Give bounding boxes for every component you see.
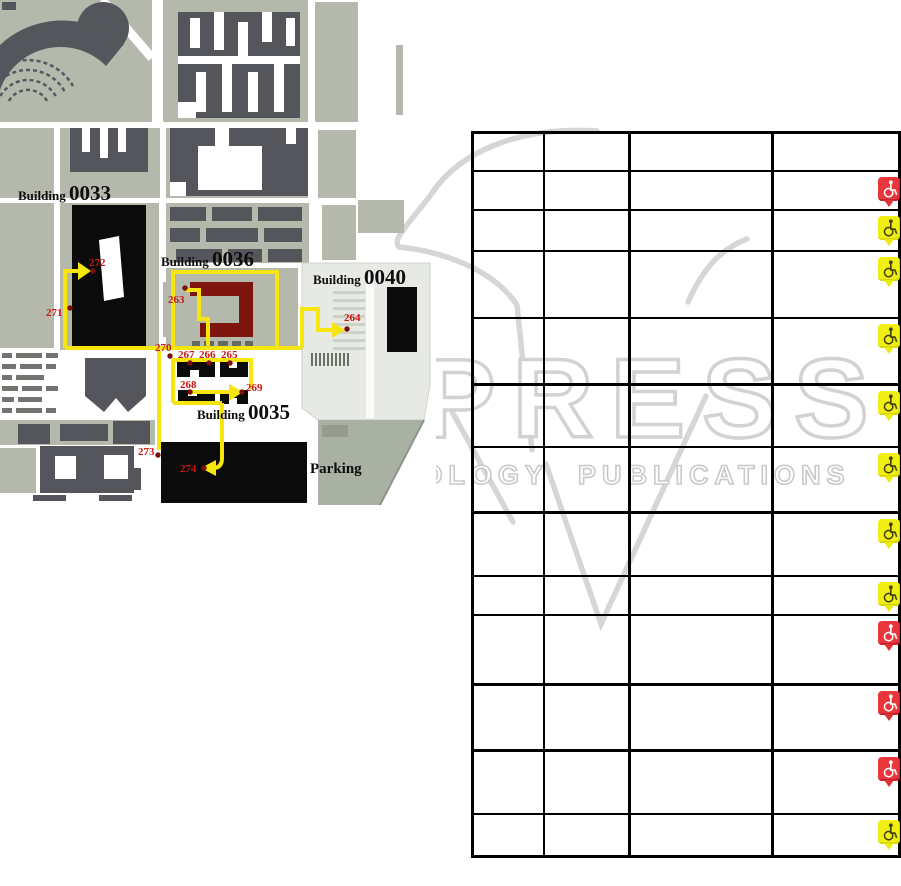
table-row — [473, 615, 900, 685]
waypoint-dot-264 — [344, 326, 349, 331]
table-cell — [630, 814, 773, 857]
waypoint-label-271: 271 — [46, 307, 63, 319]
table-row — [473, 751, 900, 814]
table-cell — [630, 685, 773, 751]
bottom-strip-buildings — [18, 421, 150, 444]
waypoint-label-270: 270 — [155, 342, 172, 354]
table-cell — [473, 318, 544, 385]
header-cell-1 — [473, 133, 544, 171]
wheelchair-icon — [879, 693, 899, 713]
table-cell — [544, 576, 630, 615]
table-row — [473, 318, 900, 385]
table-cell — [544, 385, 630, 447]
table-cell — [630, 513, 773, 576]
table-cell — [544, 685, 630, 751]
table-row — [473, 251, 900, 318]
wheelchair-marker-icon — [878, 519, 900, 543]
wheelchair-marker-icon — [878, 453, 900, 477]
accessibility-table — [471, 131, 901, 858]
paper-figure-page: SCITEPRESS SCIENCE AND TECHNOLOGY PUBLIC… — [0, 0, 901, 886]
table-cell — [630, 210, 773, 251]
waypoint-label-269: 269 — [246, 382, 263, 394]
table-cell — [630, 447, 773, 513]
wheelchair-icon — [879, 179, 899, 199]
waypoint-dot-274 — [201, 465, 206, 470]
table-cell — [473, 814, 544, 857]
parking-label: Parking — [310, 461, 362, 477]
header-cell-4 — [773, 133, 900, 171]
table-cell — [473, 251, 544, 318]
header-cell-2 — [544, 133, 630, 171]
waypoint-dot-263 — [182, 285, 187, 290]
wheelchair-marker-icon — [878, 691, 900, 715]
table-cell — [630, 751, 773, 814]
table-cell — [630, 385, 773, 447]
table-row — [473, 385, 900, 447]
waypoint-dot-267 — [187, 360, 192, 365]
wheelchair-marker-icon — [878, 391, 900, 415]
table-row — [473, 685, 900, 751]
table-row — [473, 814, 900, 857]
wheelchair-marker-icon — [878, 324, 900, 348]
waypoint-label-272: 272 — [89, 257, 106, 269]
wheelchair-marker-icon — [878, 757, 900, 781]
table-cell — [473, 385, 544, 447]
waypoint-dot-269 — [239, 389, 244, 394]
table-cell — [630, 615, 773, 685]
table-cell — [473, 447, 544, 513]
table-cell — [773, 318, 900, 385]
bottom-left-building — [33, 446, 141, 501]
waypoint-label-273: 273 — [138, 446, 155, 458]
table-cell — [773, 685, 900, 751]
wheelchair-icon — [879, 521, 899, 541]
table-row — [473, 513, 900, 576]
waypoint-dot-270 — [167, 353, 172, 358]
waypoint-label-274: 274 — [180, 463, 197, 475]
wheelchair-marker-icon — [878, 257, 900, 281]
waypoint-label-265: 265 — [221, 349, 238, 361]
waypoint-dot-272 — [90, 268, 95, 273]
table-cell — [630, 251, 773, 318]
wheelchair-marker-icon — [878, 621, 900, 645]
accessibility-table-wrapper — [471, 131, 901, 858]
table-cell — [630, 318, 773, 385]
table-cell — [473, 513, 544, 576]
table-cell — [773, 751, 900, 814]
table-cell — [773, 615, 900, 685]
table-cell — [773, 814, 900, 857]
waypoint-label-264: 264 — [344, 312, 361, 324]
table-cell — [773, 171, 900, 210]
table-cell — [473, 171, 544, 210]
wheelchair-icon — [879, 259, 899, 279]
waypoint-label-268: 268 — [180, 379, 197, 391]
table-cell — [773, 576, 900, 615]
wheelchair-icon — [879, 584, 899, 604]
table-cell — [630, 576, 773, 615]
table-cell — [773, 447, 900, 513]
waypoint-label-263: 263 — [168, 294, 185, 306]
table-cell — [773, 251, 900, 318]
campus-map: 263264265266267268269270271272273274 Bui… — [0, 0, 436, 510]
table-cell — [473, 210, 544, 251]
table-cell — [630, 171, 773, 210]
table-cell — [473, 685, 544, 751]
wheelchair-icon — [879, 326, 899, 346]
table-cell — [544, 318, 630, 385]
wheelchair-icon — [879, 455, 899, 475]
wheelchair-icon — [879, 759, 899, 779]
table-header-row — [473, 133, 900, 171]
wheelchair-marker-icon — [878, 582, 900, 606]
building-block-top — [178, 12, 300, 118]
table-cell — [544, 615, 630, 685]
table-row — [473, 576, 900, 615]
waypoint-dot-265 — [227, 360, 232, 365]
table-row — [473, 171, 900, 210]
table-cell — [544, 814, 630, 857]
table-row — [473, 447, 900, 513]
table-cell — [473, 576, 544, 615]
waypoint-dot-273 — [155, 452, 160, 457]
wheelchair-icon — [879, 393, 899, 413]
table-cell — [773, 385, 900, 447]
table-row — [473, 210, 900, 251]
wheelchair-marker-icon — [878, 177, 900, 201]
wheelchair-icon — [879, 822, 899, 842]
waypoint-label-267: 267 — [178, 349, 195, 361]
waypoint-label-266: 266 — [199, 349, 216, 361]
wheelchair-icon — [879, 218, 899, 238]
table-cell — [773, 210, 900, 251]
wheelchair-marker-icon — [878, 216, 900, 240]
table-cell — [544, 513, 630, 576]
table-cell — [544, 751, 630, 814]
waypoint-dot-271 — [67, 305, 72, 310]
wheelchair-marker-icon — [878, 820, 900, 844]
header-cell-3 — [630, 133, 773, 171]
table-cell — [773, 513, 900, 576]
table-cell — [473, 751, 544, 814]
table-cell — [544, 447, 630, 513]
waypoint-dot-266 — [206, 360, 211, 365]
wheelchair-icon — [879, 623, 899, 643]
table-cell — [544, 171, 630, 210]
table-cell — [473, 615, 544, 685]
table-cell — [544, 251, 630, 318]
table-cell — [544, 210, 630, 251]
